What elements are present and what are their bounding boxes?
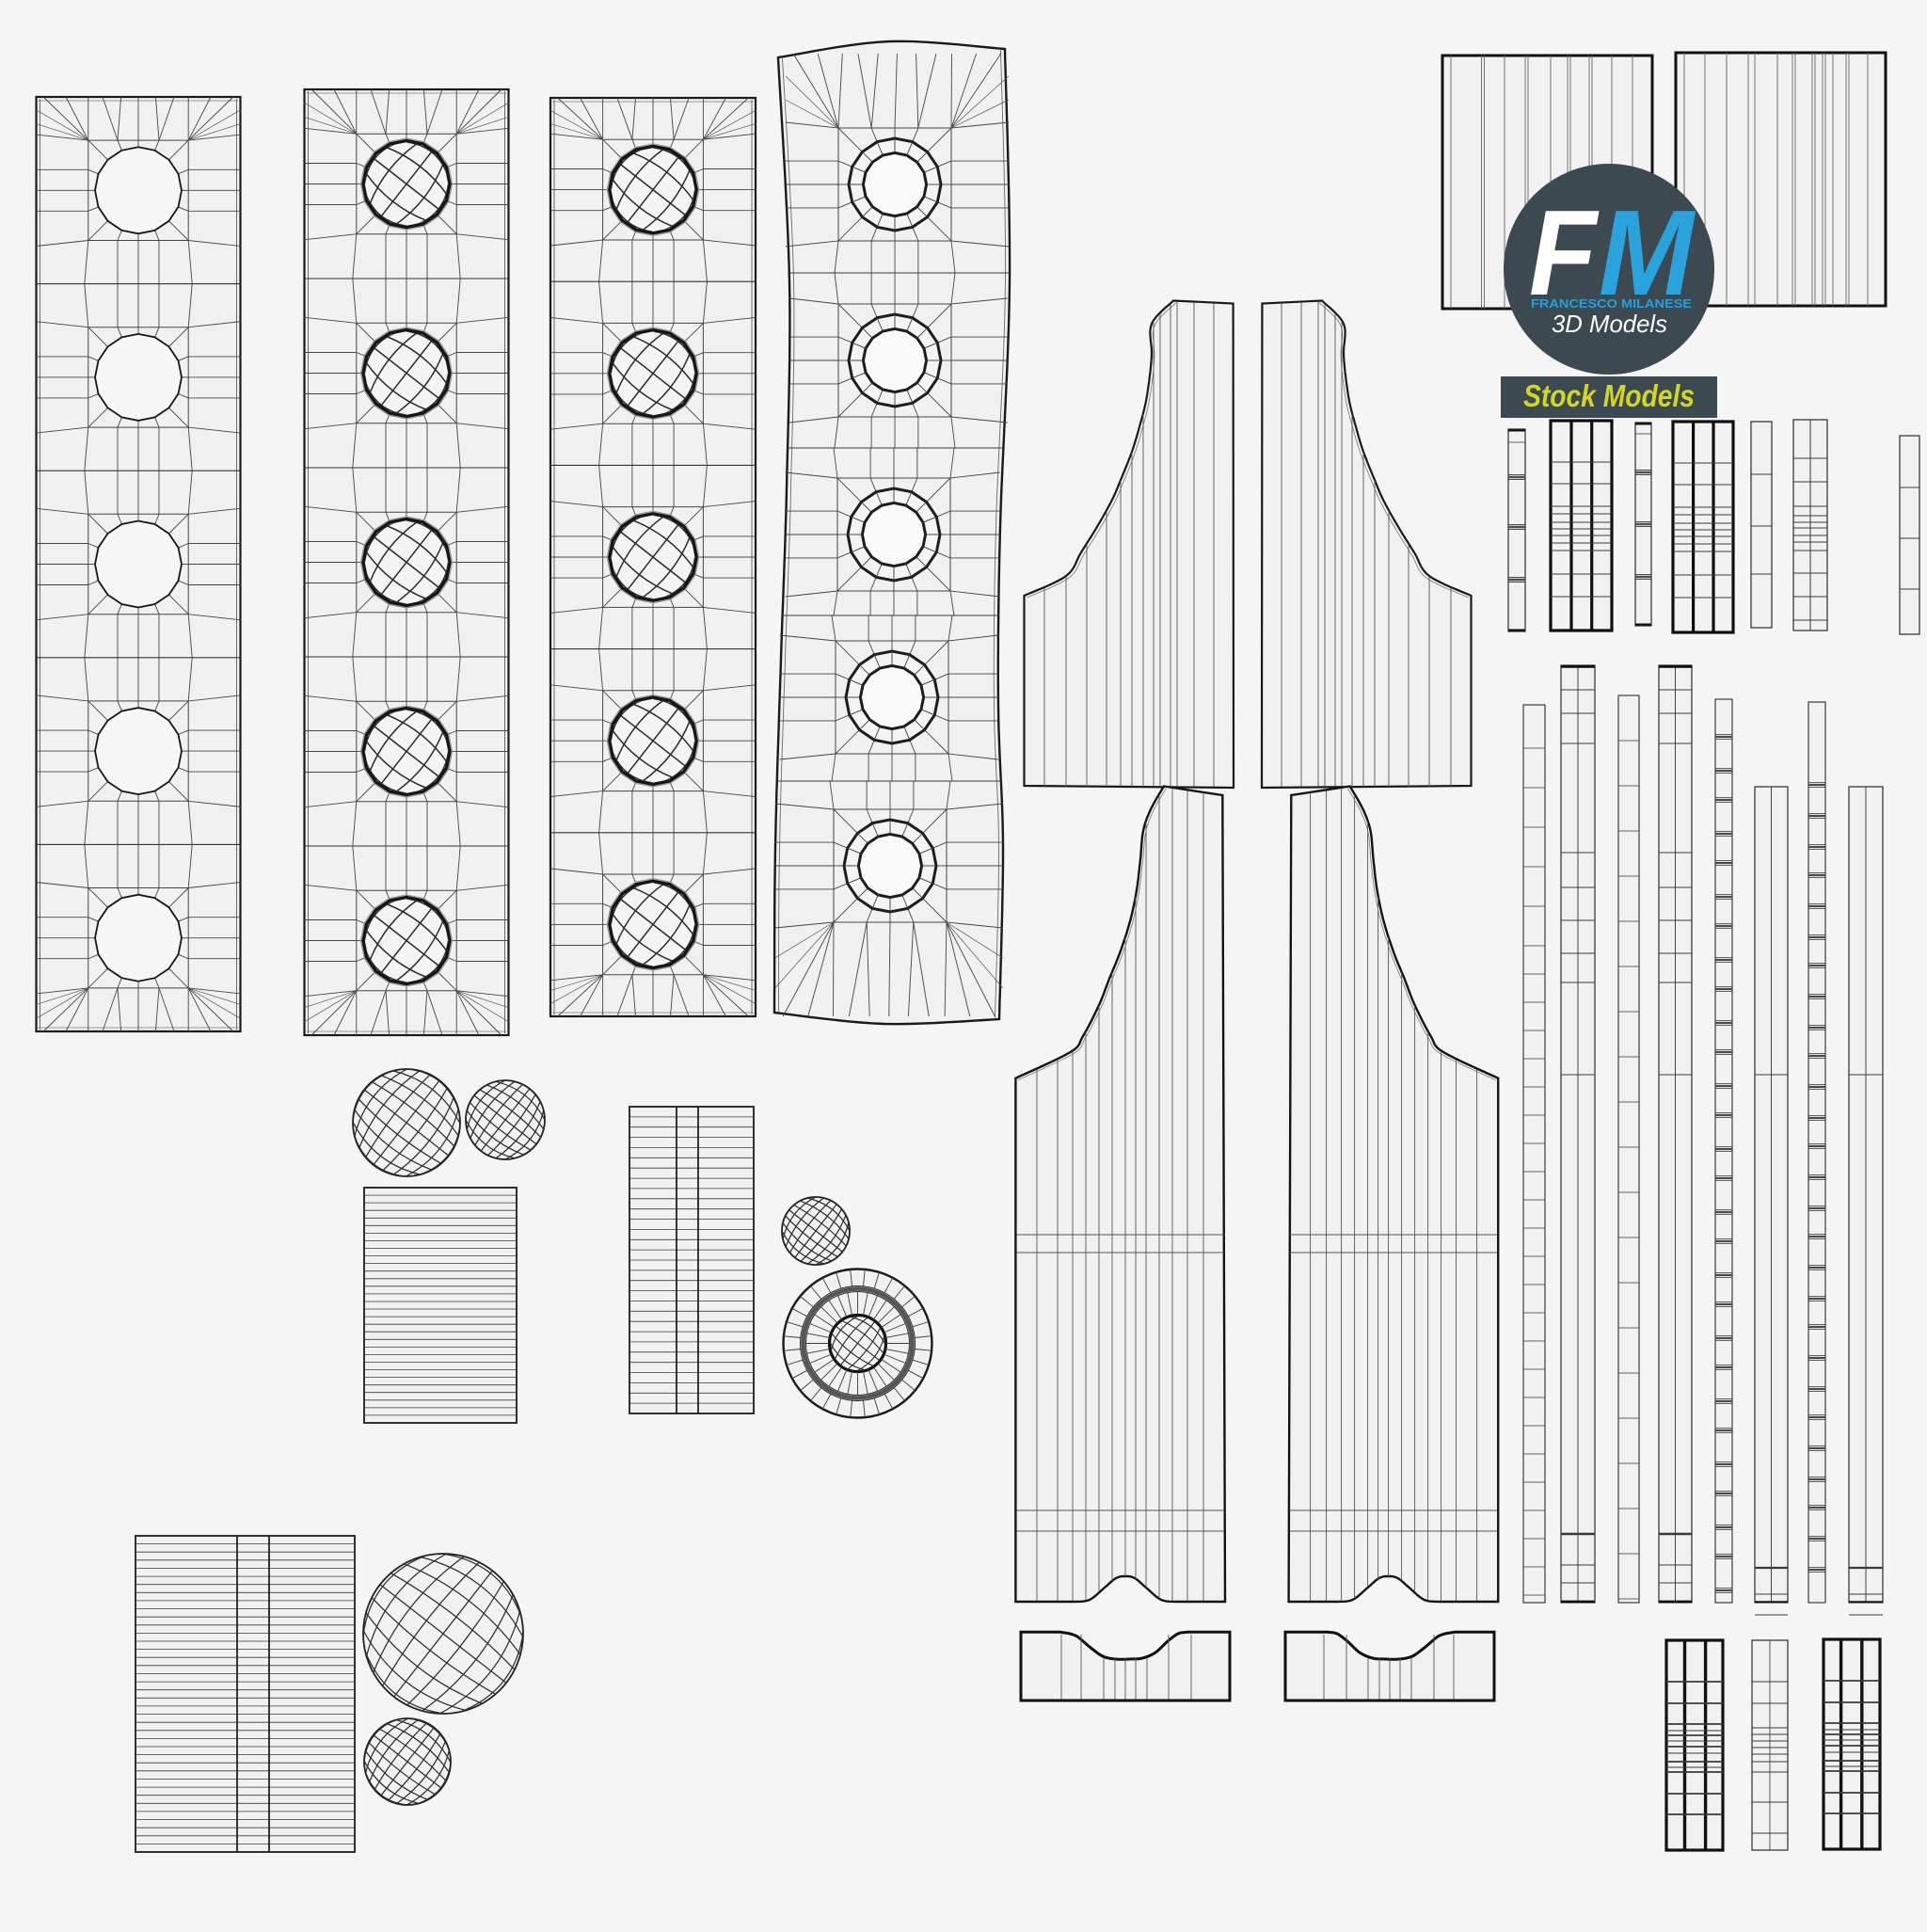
svg-text:Stock Models: Stock Models bbox=[1523, 378, 1695, 413]
svg-text:FRANCESCO MILANESE: FRANCESCO MILANESE bbox=[1531, 297, 1692, 311]
svg-text:3D Models: 3D Models bbox=[1552, 310, 1667, 338]
